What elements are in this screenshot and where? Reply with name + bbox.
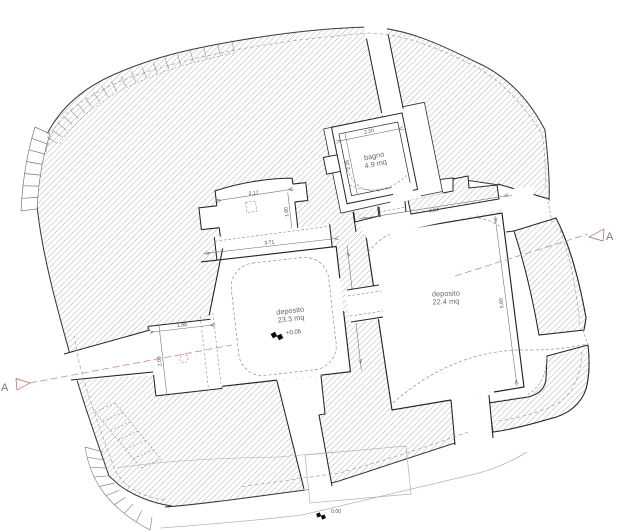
svg-text:22.4 mq: 22.4 mq	[432, 297, 459, 307]
svg-text:5.60: 5.60	[498, 298, 505, 309]
svg-text:2.17: 2.17	[248, 190, 259, 197]
svg-text:A: A	[1, 382, 9, 394]
svg-text:0.00: 0.00	[331, 509, 341, 515]
svg-text:A: A	[606, 231, 614, 243]
svg-text:3.71: 3.71	[264, 240, 275, 247]
svg-text:1.60: 1.60	[283, 206, 290, 217]
svg-text:2.08: 2.08	[156, 356, 163, 367]
svg-text:1.88: 1.88	[177, 322, 188, 329]
